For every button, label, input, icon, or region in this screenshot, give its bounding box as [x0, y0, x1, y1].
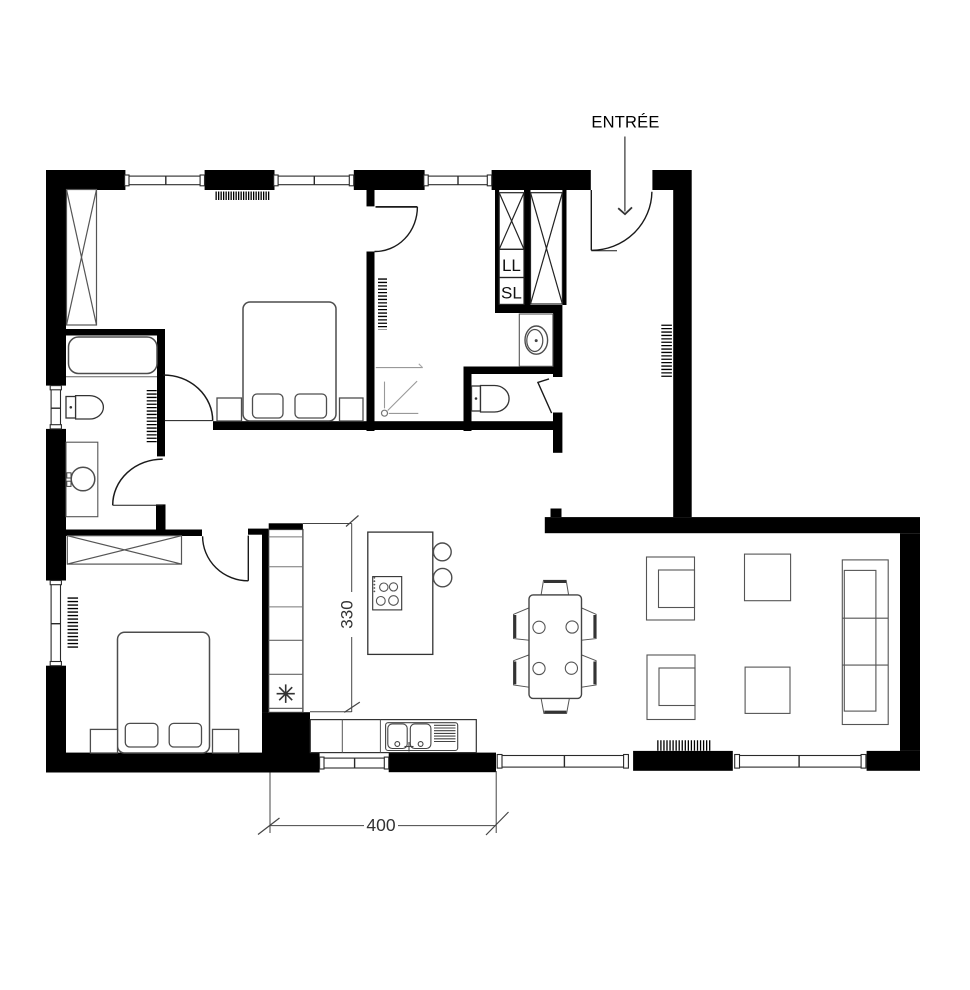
svg-text:400: 400 [366, 815, 395, 835]
svg-text:SL: SL [501, 284, 522, 303]
svg-text:ENTRÉE: ENTRÉE [591, 113, 659, 132]
svg-text:330: 330 [338, 600, 357, 628]
svg-text:LL: LL [502, 256, 521, 275]
